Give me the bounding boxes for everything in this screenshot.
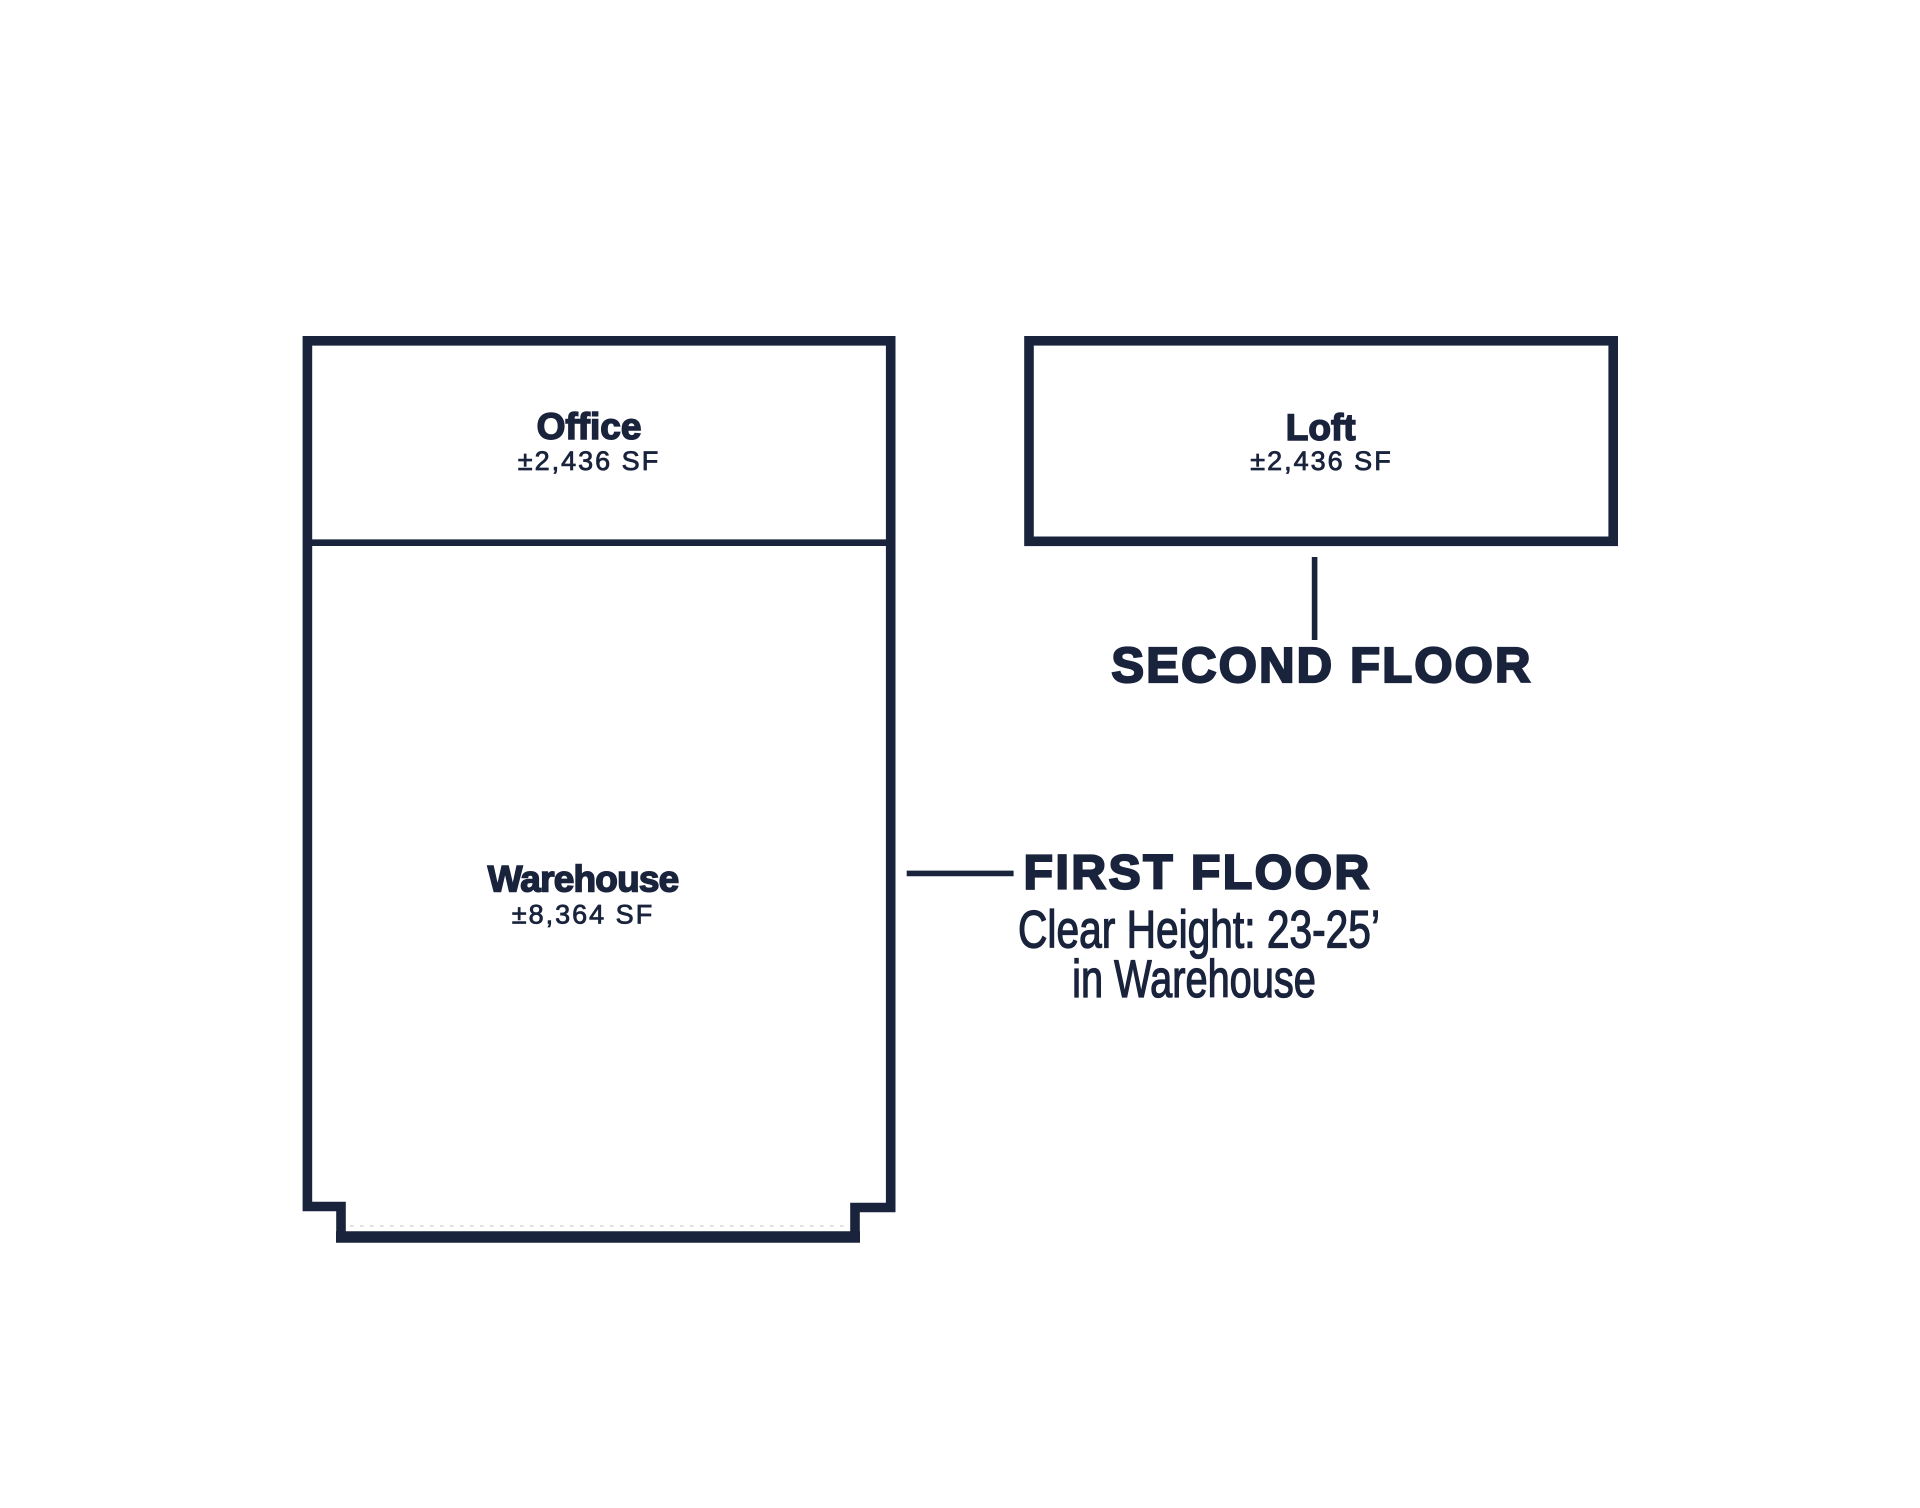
svg-text:±2,436 SF: ±2,436 SF xyxy=(518,446,660,476)
svg-text:±8,364 SF: ±8,364 SF xyxy=(512,900,654,930)
svg-text:±2,436 SF: ±2,436 SF xyxy=(1250,446,1392,476)
svg-text:in Warehouse: in Warehouse xyxy=(1072,949,1316,1008)
svg-text:Office: Office xyxy=(537,406,642,447)
svg-text:SECOND FLOOR: SECOND FLOOR xyxy=(1111,639,1532,693)
svg-text:Warehouse: Warehouse xyxy=(488,859,679,900)
svg-text:Loft: Loft xyxy=(1286,407,1356,448)
svg-text:FIRST FLOOR: FIRST FLOOR xyxy=(1024,846,1372,899)
